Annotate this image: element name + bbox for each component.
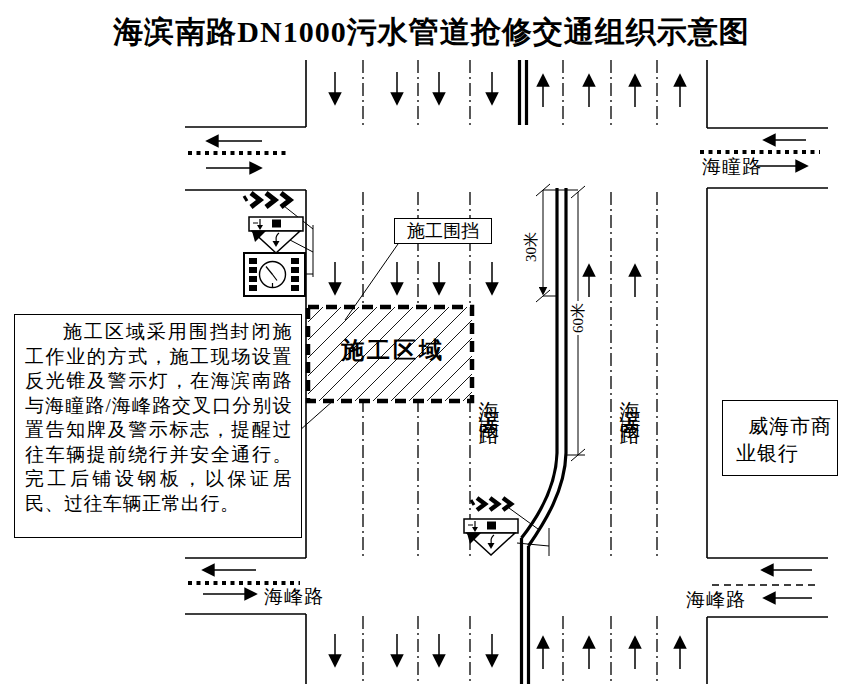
warning-light-board-icon xyxy=(244,253,305,296)
bank-building-label: 威海市商业银行 xyxy=(722,400,838,476)
top-street-name: 海瞳路 xyxy=(702,154,762,180)
main-road-name-left: 海滨南路 xyxy=(477,384,501,416)
dimension-60m-label: 60米 xyxy=(569,301,588,335)
construction-zone-label: 施工区域 xyxy=(341,335,445,366)
main-road-name-right: 海滨南路 xyxy=(618,384,642,416)
construction-note-box: 施工区域采用围挡封闭施工作业的方式，施工现场设置反光锥及警示灯，在海滨南路与海瞳… xyxy=(14,314,302,538)
chevron-marks-bottom-icon xyxy=(471,498,511,510)
bottom-street-name-east: 海峰路 xyxy=(686,587,746,613)
dimension-30m-label: 30米 xyxy=(522,230,541,264)
detour-warning-sign-top-icon xyxy=(249,217,303,253)
chevron-marks-top-icon xyxy=(244,193,290,207)
construction-fence-label: 施工围挡 xyxy=(394,218,492,244)
median-barrier-line xyxy=(520,60,567,684)
bottom-street-name-west: 海峰路 xyxy=(264,584,324,610)
construction-note-text: 施工区域采用围挡封闭施工作业的方式，施工现场设置反光锥及警示灯，在海滨南路与海瞳… xyxy=(25,321,292,514)
traffic-diagram: 海滨南路DN1000污水管道抢修交通组织示意图 施工区域采用围挡封闭施工作业的方… xyxy=(0,0,863,694)
page-title: 海滨南路DN1000污水管道抢修交通组织示意图 xyxy=(0,12,863,53)
detour-warning-sign-bottom-icon xyxy=(464,519,518,555)
